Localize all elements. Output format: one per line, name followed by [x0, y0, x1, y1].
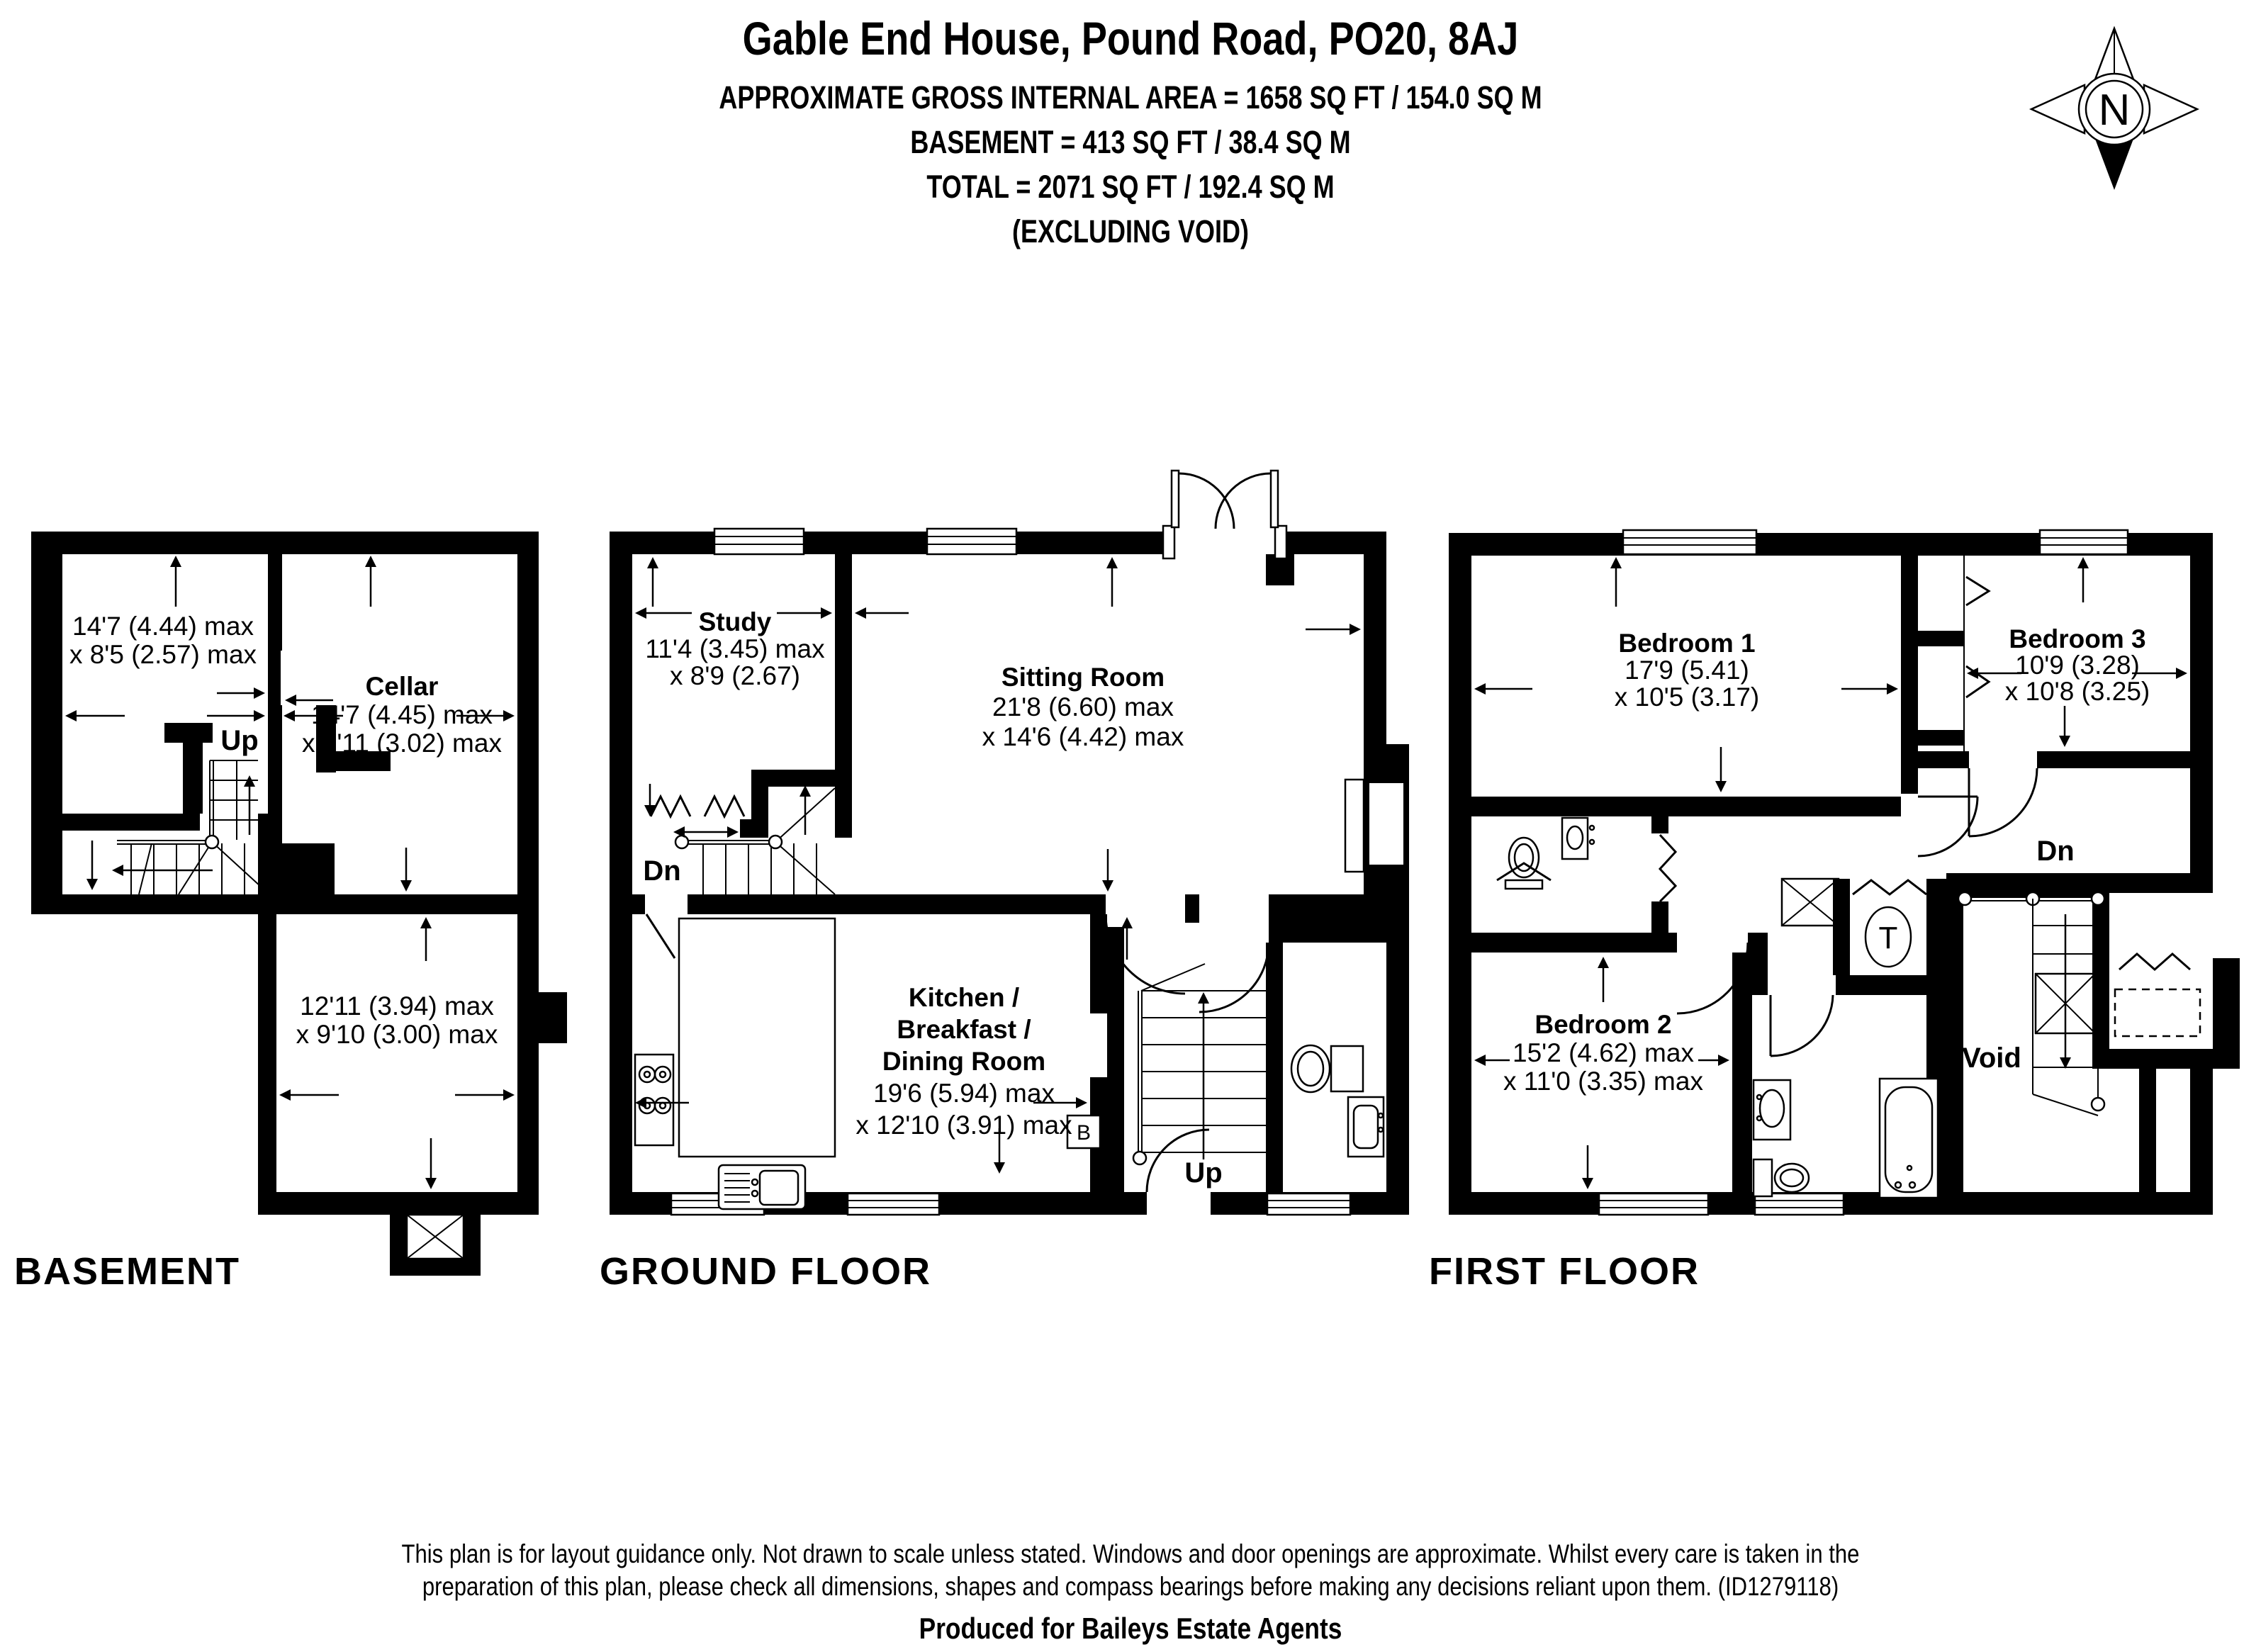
basement-floor-label: BASEMENT: [14, 1250, 240, 1293]
bedroom2-dim1: 15'2 (4.62) max: [1513, 1038, 1694, 1067]
window: [1267, 1193, 1350, 1215]
bedroom3-dim2: x 10'8 (3.25): [2005, 677, 2150, 706]
boiler-label: B: [1077, 1121, 1091, 1145]
sink: [719, 1165, 805, 1209]
cellar-name: Cellar: [366, 672, 439, 701]
study-dim1: 11'4 (3.45) max: [645, 634, 825, 663]
page-title: Gable End House, Pound Road, PO20, 8AJ: [203, 11, 2058, 65]
store-dim1: 14'7 (4.44) max: [72, 612, 254, 641]
disclaimer-line1: This plan is for layout guidance only. N…: [181, 1539, 2080, 1569]
bedroom3-name: Bedroom 3: [2009, 624, 2145, 653]
floorplan-page: { "header": { "title": "Gable End House,…: [0, 0, 2261, 1652]
cellar-dim2: x 9'11 (3.02) max: [302, 729, 502, 758]
kitchen-name2: Breakfast /: [897, 1015, 1031, 1044]
bedroom1-dim1: 17'9 (5.41): [1625, 656, 1749, 685]
basement-plan: 14'7 (4.44) max x 8'5 (2.57) max Cellar …: [0, 496, 581, 1304]
first-dn-label: Dn: [2036, 836, 2074, 867]
first-floor-plan: T Bedroom 1 17'9 (5.41) x 10'5 (3.17) Be…: [1418, 496, 2261, 1304]
bedroom2-dim2: x 11'0 (3.35) max: [1503, 1067, 1703, 1096]
window: [2040, 530, 2128, 554]
void-label: Void: [1962, 1043, 2021, 1074]
sitting-room-dim1: 21'8 (6.60) max: [992, 692, 1174, 721]
cellar-dim1: 14'7 (4.45) max: [311, 700, 493, 729]
bedroom1-name: Bedroom 1: [1618, 629, 1755, 658]
disclaimer-line2: preparation of this plan, please check a…: [181, 1572, 2080, 1602]
footer-disclaimer: This plan is for layout guidance only. N…: [0, 1536, 2261, 1646]
bedroom1-dim2: x 10'5 (3.17): [1615, 682, 1760, 712]
tank-label: T: [1879, 921, 1898, 955]
bedroom2-name: Bedroom 2: [1535, 1010, 1671, 1039]
store-dim2: x 8'5 (2.57) max: [69, 640, 257, 669]
kitchen-name1: Kitchen /: [909, 983, 1019, 1012]
window: [927, 529, 1016, 554]
window: [714, 529, 804, 554]
compass-north-label: N: [2099, 86, 2131, 135]
sitting-room-dim2: x 14'6 (4.42) max: [982, 722, 1184, 751]
kitchen-dim2: x 12'10 (3.91) max: [855, 1111, 1072, 1140]
lower-room-dim2: x 9'10 (3.00) max: [296, 1020, 498, 1049]
excluding-void-line: (EXCLUDING VOID): [226, 213, 2035, 250]
kitchen-dim1: 19'6 (5.94) max: [873, 1079, 1055, 1108]
total-area-line: TOTAL = 2071 SQ FT / 192.4 SQ M: [226, 169, 2035, 206]
ground-fireplace: [1345, 780, 1364, 872]
ground-floor-label: GROUND FLOOR: [600, 1250, 931, 1293]
header: Gable End House, Pound Road, PO20, 8AJ A…: [0, 11, 2261, 258]
bath: [1880, 1079, 1938, 1198]
sitting-room-name: Sitting Room: [1002, 663, 1165, 692]
ground-floor-plan: B Study 11'4 (3.45) max x 8'9 (2.67) Sit…: [588, 446, 1425, 1304]
ground-dn-label: Dn: [643, 855, 680, 887]
first-floor-label: FIRST FLOOR: [1429, 1250, 1700, 1293]
producer-credit: Produced for Baileys Estate Agents: [181, 1612, 2080, 1646]
window: [1623, 530, 1756, 554]
basement-up-label: Up: [220, 725, 258, 756]
basin: [1754, 1080, 1790, 1140]
study-dim2: x 8'9 (2.67): [670, 661, 800, 690]
ground-up-label: Up: [1184, 1157, 1222, 1189]
gross-area-line: APPROXIMATE GROSS INTERNAL AREA = 1658 S…: [226, 79, 2035, 116]
basement-area-line: BASEMENT = 413 SQ FT / 38.4 SQ M: [226, 124, 2035, 161]
window: [1599, 1193, 1708, 1215]
boiler: B: [1067, 1116, 1100, 1148]
study-name: Study: [699, 607, 772, 636]
bedroom3-dim1: 10'9 (3.28): [2015, 651, 2140, 680]
lower-room-dim1: 12'11 (3.94) max: [300, 991, 494, 1021]
kitchen-name3: Dining Room: [882, 1047, 1045, 1076]
compass-rose-icon: N: [2013, 14, 2218, 220]
window: [848, 1193, 939, 1215]
